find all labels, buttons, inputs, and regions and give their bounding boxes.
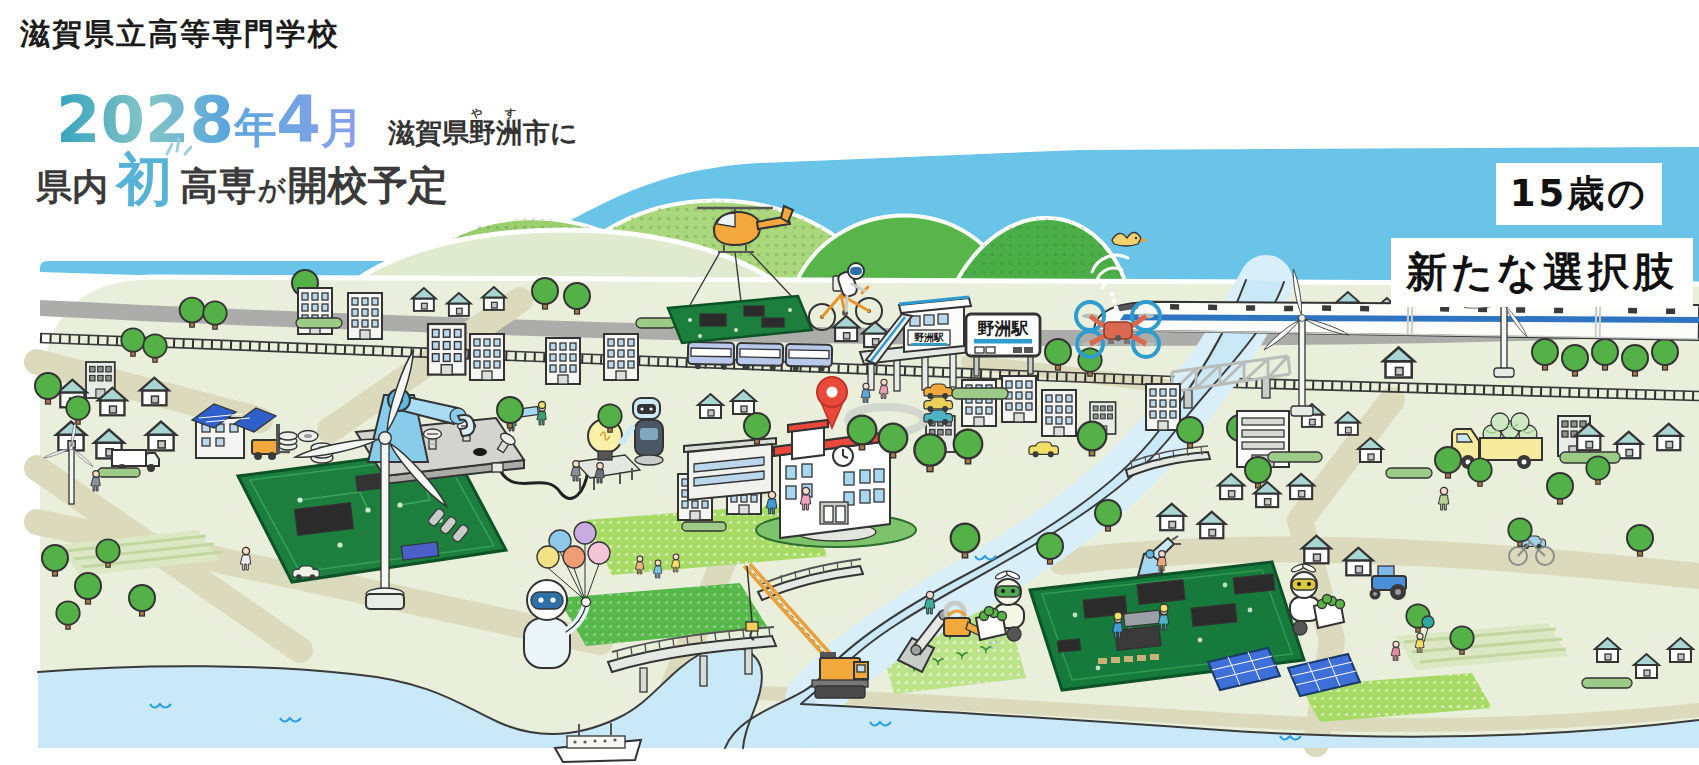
headline-line1: 2028年4月 滋賀県野洲や す市に [56, 82, 578, 154]
page-title: 滋賀県立高等専門学校 [20, 14, 340, 55]
kid-balloon [1422, 616, 1434, 628]
line2-particle: が [258, 172, 286, 208]
line2-prefix: 県内 [36, 163, 108, 212]
warehouse [684, 438, 776, 500]
date-month-digit: 4 [276, 83, 321, 154]
date-month-unit: 月 [320, 103, 363, 152]
station-building-sign: 野洲駅 [914, 332, 945, 343]
sparkle-icon [164, 136, 192, 158]
date-year-unit: 年 [232, 103, 276, 152]
headline-date: 2028年4月 [56, 82, 378, 154]
date-year-digits: 2028 [56, 83, 234, 154]
station-signboard-text: 野洲駅 [978, 318, 1030, 338]
poster: 野洲駅 野洲駅 [0, 0, 1699, 765]
tagline-line2: 新たな選択肢 [1391, 238, 1693, 307]
location-ruby: 野洲や す [469, 117, 523, 148]
headline-location: 滋賀県野洲や す市に [388, 108, 578, 154]
headline-line2: 県内 初 高専 が 開校予定 [36, 152, 448, 213]
line2-highlight: 初 [116, 152, 172, 208]
svg-text:2028年4月: 2028年4月 [56, 83, 363, 154]
parked-cars [924, 384, 953, 425]
tagline-line1: 15歳の [1496, 163, 1662, 225]
line2-rest: 開校予定 [288, 158, 448, 213]
line2-word: 高専 [180, 161, 256, 212]
